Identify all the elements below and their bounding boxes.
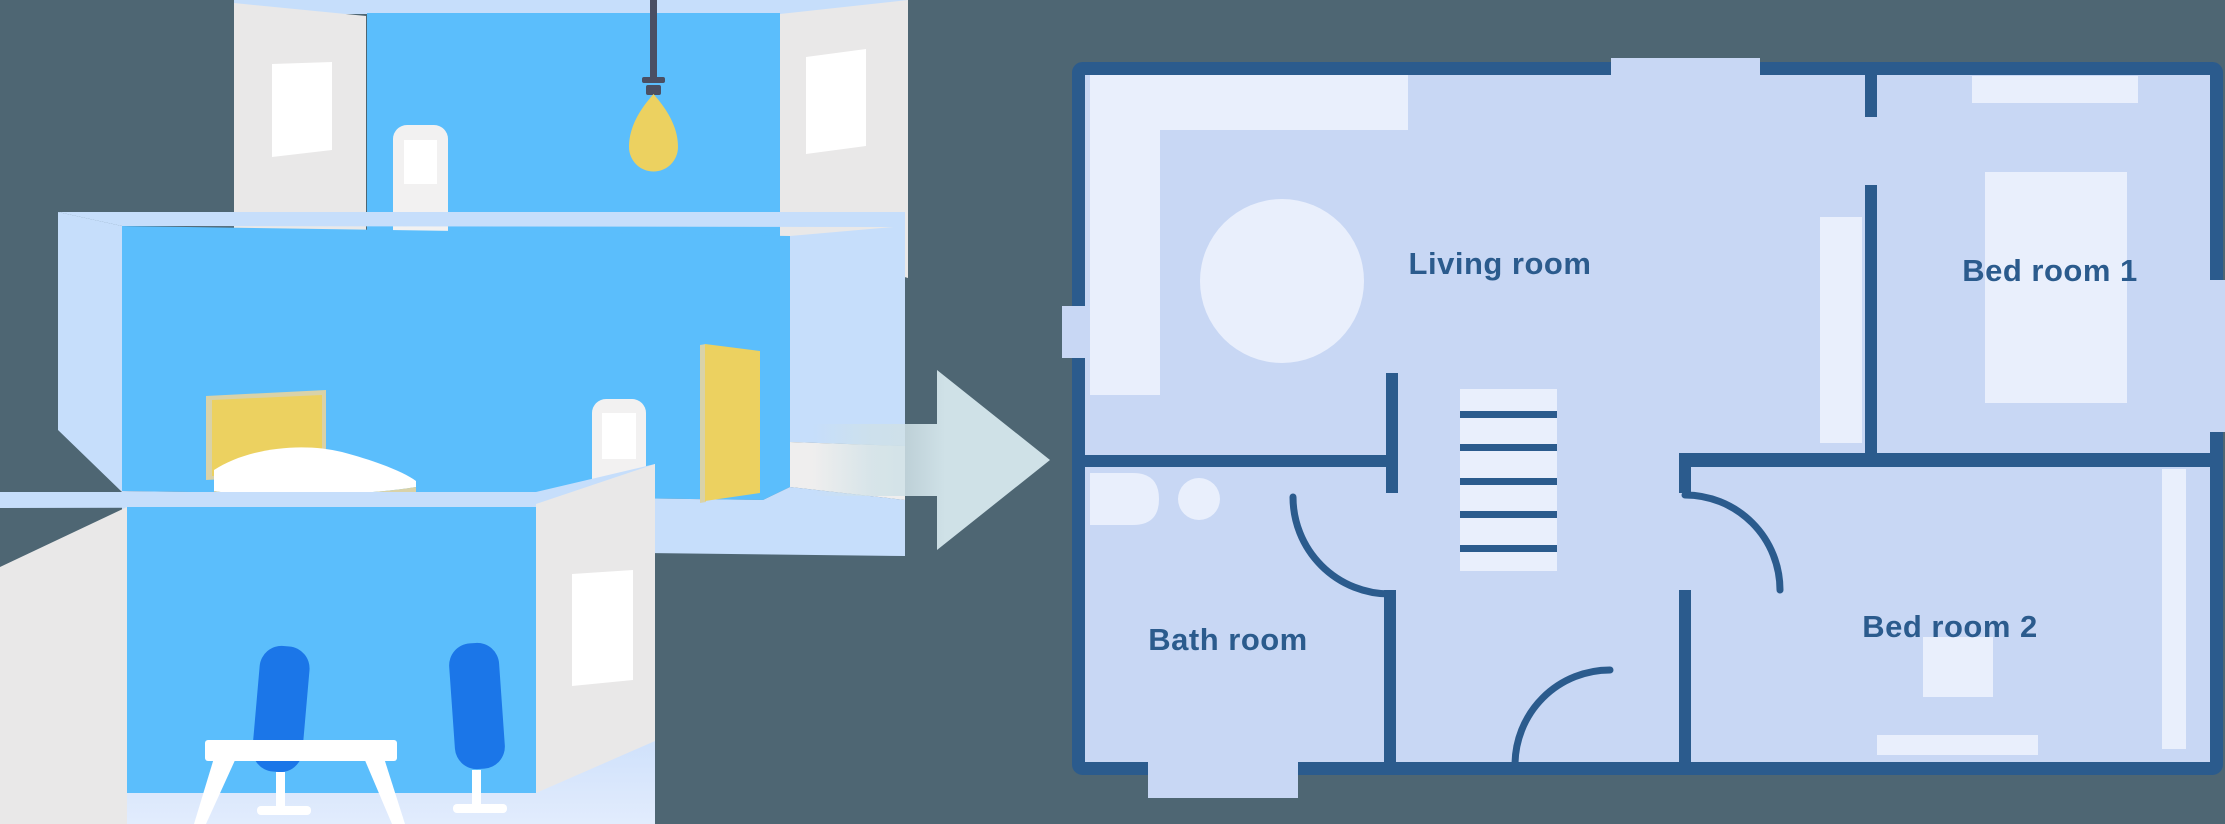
sink-icon	[1178, 478, 1220, 520]
bathtub-icon	[1090, 473, 1159, 525]
wall-bedroom2-top	[1679, 453, 2211, 467]
right-window-marker	[2205, 280, 2225, 432]
bedroom2-dresser-icon	[1877, 735, 2038, 755]
wall-bedroom1-left	[1865, 185, 1877, 457]
middle-room-yellow-door	[705, 344, 760, 501]
floor-plan: Living room Bed room 1 Bath room Bed roo…	[1062, 58, 2225, 798]
hall-closet-icon	[1820, 217, 1862, 443]
wall-hall-right-stub	[1679, 467, 1691, 493]
bottom-room-right-window	[572, 570, 633, 686]
middle-room-door-window	[602, 413, 636, 459]
bedroom2-label: Bed room 2	[1862, 609, 2038, 644]
wall-bedroom1-stub	[1865, 68, 1877, 117]
top-entry-opening	[1611, 58, 1760, 92]
wall-hall-left-upper	[1386, 373, 1398, 493]
top-room-door-window	[404, 140, 437, 184]
top-room-right-window	[806, 49, 866, 154]
wall-hall-right-lower	[1679, 590, 1691, 762]
middle-room-right-ceiling-wedge	[790, 226, 905, 446]
middle-room-ceiling	[58, 212, 905, 227]
rug-icon	[1200, 199, 1364, 363]
bottom-entry-step	[1148, 762, 1298, 798]
top-room-left-window	[272, 62, 332, 157]
diagram-canvas: Living room Bed room 1 Bath room Bed roo…	[0, 0, 2225, 824]
left-window-marker	[1062, 306, 1086, 358]
wall-hall-left-lower	[1384, 590, 1396, 762]
wall-living-bath	[1072, 455, 1398, 467]
bedroom1-label: Bed room 1	[1962, 253, 2138, 288]
bedroom2-closet-icon	[2162, 469, 2186, 749]
bedroom1-dresser-icon	[1972, 76, 2138, 103]
bathroom-label: Bath room	[1148, 622, 1308, 657]
bedroom2-table-icon	[1923, 637, 1993, 697]
living-room-label: Living room	[1409, 246, 1592, 281]
house-to-floorplan-diagram: Living room Bed room 1 Bath room Bed roo…	[0, 0, 2225, 824]
